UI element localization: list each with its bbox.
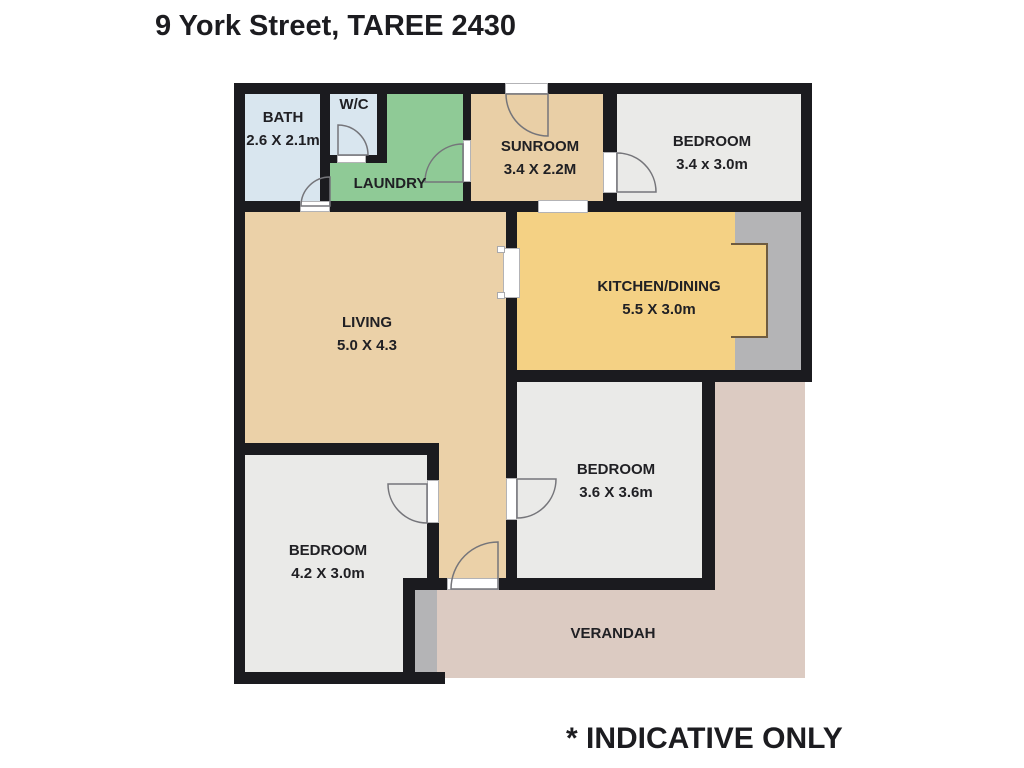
living-kitchen-opening [503, 248, 520, 298]
bedroom-right-door-opening [506, 478, 517, 520]
wc-door-opening [337, 155, 366, 163]
bath-door-opening [300, 201, 330, 212]
wall-bath-right [320, 94, 330, 201]
wall-steps-left [403, 590, 415, 672]
room-bedroom-left-label: BEDROOM4.2 X 3.0m [289, 539, 367, 585]
floorplan-canvas: 9 York Street, TAREE 2430 * INDICATIVE O… [0, 0, 1024, 768]
kitchen-notch [731, 243, 768, 338]
room-sunroom-label: SUNROOM3.4 X 2.2M [501, 135, 579, 181]
steps-block [415, 590, 437, 672]
wall-outer-bottom-left [234, 672, 445, 684]
wall-wc-right [377, 94, 387, 163]
room-living-label: LIVING5.0 X 4.3 [337, 311, 397, 357]
front-door-opening [505, 83, 548, 94]
page-title: 9 York Street, TAREE 2430 [155, 10, 516, 43]
room-kitchen-label: KITCHEN/DINING5.5 X 3.0m [597, 275, 720, 321]
wall-outer-right [801, 83, 812, 382]
room-wc-label: W/C [339, 93, 368, 116]
hall-verandah-door-opening [447, 578, 499, 590]
room-bath-label: BATH2.6 X 2.1m [246, 106, 319, 152]
room-bedroom-right-label: BEDROOM3.6 X 3.6m [577, 458, 655, 504]
disclaimer-note: * INDICATIVE ONLY [566, 722, 843, 756]
wall-kitchen-bottom [506, 370, 812, 382]
wall-bedroom-right-east [702, 382, 715, 590]
hallway-floor [439, 443, 506, 590]
bedroom-left-door-opening [427, 480, 439, 523]
room-verandah-label: VERANDAH [570, 622, 655, 645]
room-laundry-label: LAUNDRY [354, 172, 427, 195]
wall-outer-left [234, 83, 245, 684]
room-bedroom-top-label: BEDROOM3.4 x 3.0m [673, 130, 751, 176]
opening-jamb [497, 246, 505, 253]
sunroom-bedroom-door-opening [603, 152, 617, 193]
wall-bedroom-left-top [234, 443, 439, 455]
laundry-door-opening [463, 140, 471, 182]
opening-jamb [497, 292, 505, 299]
servery-window [538, 200, 588, 213]
